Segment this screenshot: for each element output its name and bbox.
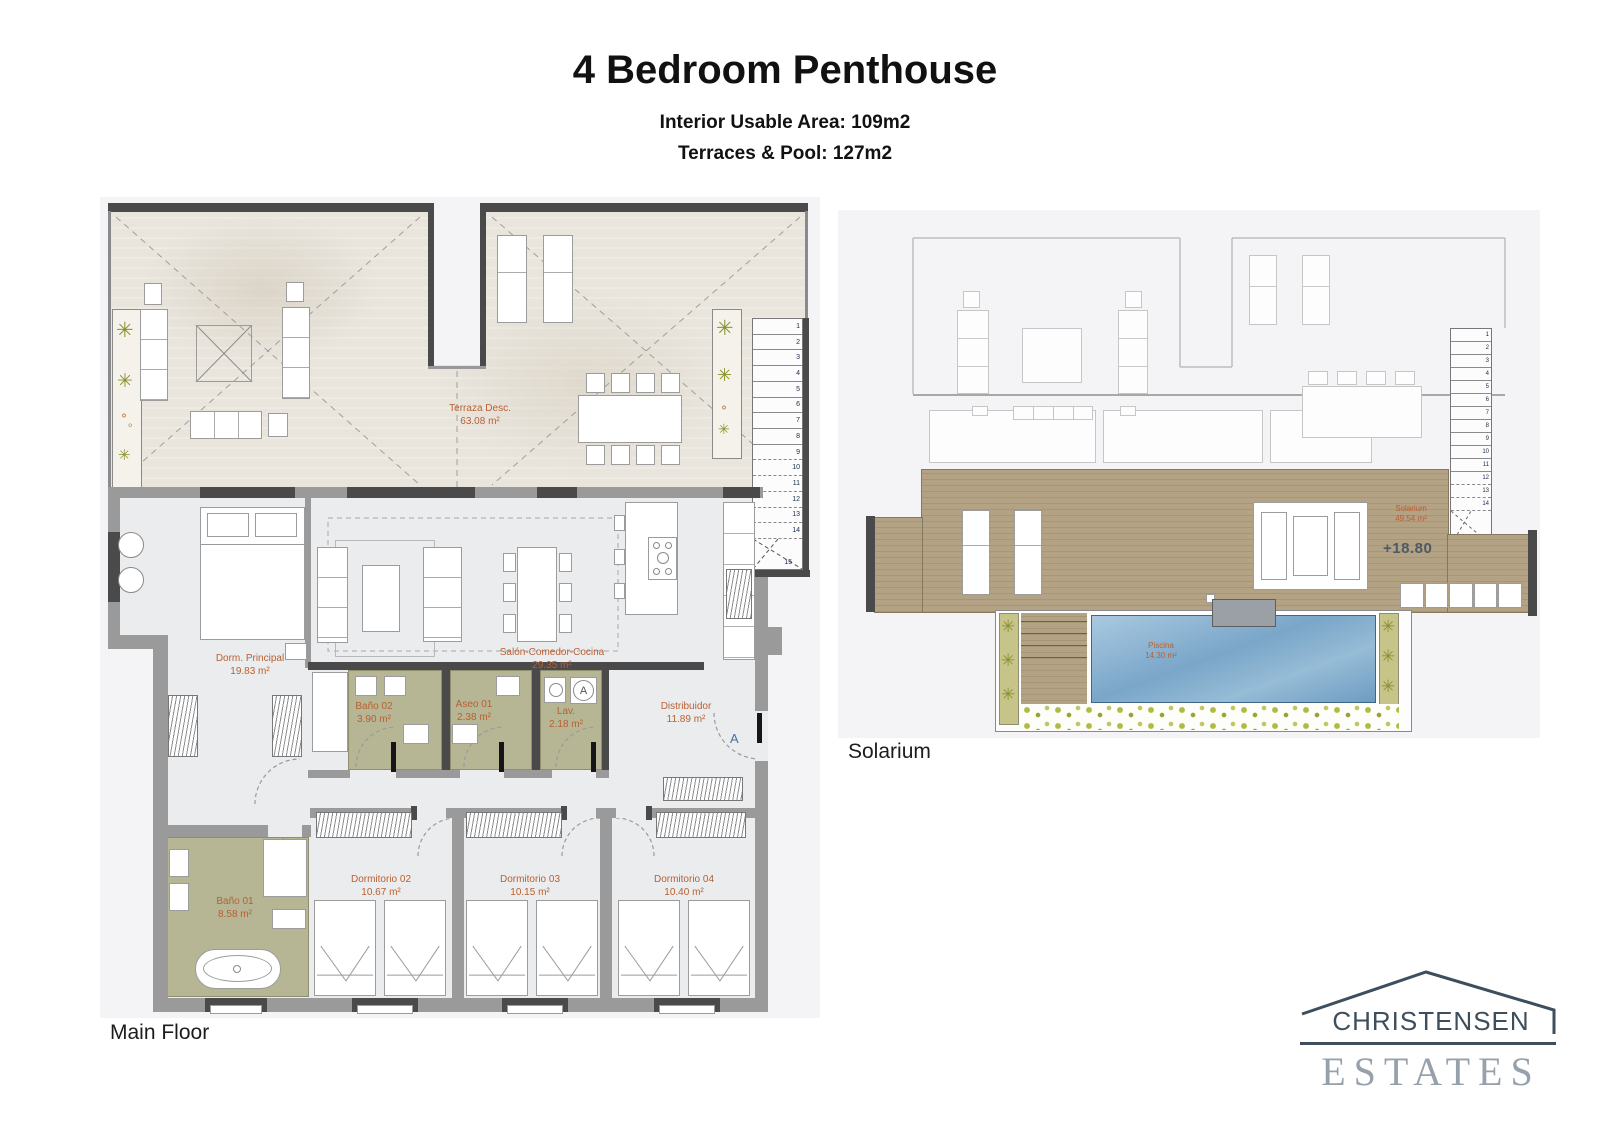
section-marker: A	[730, 731, 739, 746]
bathroom2-shower	[312, 672, 348, 752]
stair-step: 12	[1451, 472, 1491, 485]
wardrobe	[316, 812, 412, 838]
stair-step: 2	[753, 335, 802, 351]
dining-chair	[636, 373, 655, 393]
deck-seating-group	[1253, 502, 1368, 590]
dining-chair	[503, 553, 516, 572]
logo-rule	[1300, 1042, 1556, 1045]
solarium-deck	[922, 470, 1448, 612]
kitchen-hob	[648, 537, 677, 580]
step-line	[1021, 633, 1087, 634]
salon-coffee-table	[362, 565, 400, 632]
bathroom2-sink	[384, 676, 406, 696]
room-label-bano01: Baño 018.58 m²	[216, 895, 253, 921]
ghost-sofa	[957, 310, 989, 394]
seat-table	[1293, 516, 1328, 576]
terrace-wall-top-left	[108, 203, 428, 212]
terrace-wall-left	[108, 211, 111, 489]
wall-right-jog	[766, 627, 782, 655]
toilet	[403, 724, 429, 744]
ghost-sill	[972, 406, 988, 416]
subtitle-terraces-pool: Terraces & Pool: 127m2	[0, 143, 1570, 165]
page-title: 4 Bedroom Penthouse	[0, 48, 1570, 93]
pillow	[207, 513, 249, 537]
bathroom-strip-wall-bottom	[396, 770, 460, 778]
stair-step: 3	[1451, 355, 1491, 368]
exterior-patch	[108, 649, 153, 1018]
burner-icon	[665, 542, 672, 549]
logo-name: CHRISTENSEN	[1296, 1006, 1566, 1037]
wardrobe	[272, 695, 302, 757]
stair-step: 5	[1451, 381, 1491, 394]
single-bed	[466, 900, 528, 996]
door-leaf	[391, 742, 396, 772]
bathroom1-door-gap	[268, 825, 302, 837]
pool-platform	[1212, 599, 1276, 627]
door-post	[646, 806, 652, 820]
ghost-room	[1103, 410, 1263, 463]
main-floor-plan: ✳ ✳ ⚬ ⚬ ✳ ✳ ✳ ⚬ ✳ 1	[100, 197, 820, 1018]
stair-step: 14	[1451, 498, 1491, 511]
sun-lounger	[962, 510, 990, 595]
stair-step: 1	[1451, 329, 1491, 342]
stair-step: 7	[753, 413, 802, 429]
hall-wardrobe	[663, 777, 743, 801]
wc1-sink	[496, 676, 520, 696]
room-label-piscina: Piscina14.30 m²	[1145, 641, 1177, 662]
pool-terrace: ✳ ✳ ✳ ✳ ✳ ✳ Piscina14.30 m²	[995, 610, 1412, 732]
ghost-dining-table	[1302, 386, 1422, 438]
bathroom2-sink	[355, 676, 377, 696]
sun-lounger	[497, 235, 527, 323]
deck-storage-row	[1400, 583, 1522, 608]
wall-laundry-hall	[602, 670, 609, 770]
deck-wall-right	[1528, 530, 1537, 616]
terrace-sofa	[190, 411, 262, 439]
bathroom-strip-wall-bottom	[596, 770, 609, 778]
kitchen-cabinet	[614, 583, 625, 599]
plant-icon: ✳	[1381, 678, 1395, 695]
kitchen-cabinet	[614, 549, 625, 565]
plant-icon: ✳	[1001, 686, 1015, 703]
solarium-caption: Solarium	[848, 740, 931, 764]
sun-lounger	[543, 235, 573, 323]
wall-dorm02-dorm03	[452, 818, 464, 1000]
stair-step: 13	[753, 508, 802, 524]
stair-step: 6	[1451, 394, 1491, 407]
main-floor-caption: Main Floor	[110, 1021, 209, 1045]
stair-step: 4	[1451, 368, 1491, 381]
stair-step: 5	[753, 382, 802, 398]
flower-icon: ⚬	[126, 422, 134, 432]
seat	[1334, 512, 1360, 580]
window-segment	[347, 487, 475, 498]
dining-chair	[661, 445, 680, 465]
plant-icon: ✳	[1001, 618, 1015, 635]
seat	[1261, 512, 1287, 580]
plant-icon: ✳	[1381, 648, 1395, 665]
terrace-cushion	[268, 413, 288, 437]
terrace-planter-left: ✳ ✳ ⚬ ⚬ ✳	[112, 309, 142, 489]
wardrobe	[168, 695, 198, 757]
dining-chair	[611, 373, 630, 393]
plant-icon: ✳	[718, 422, 730, 436]
stairs-main: 1 2 3 4 5 6 7 8 9 10 11 12 13 14 15	[752, 318, 803, 570]
salon-sofa	[423, 547, 462, 642]
dining-chair	[559, 614, 572, 633]
dining-chair	[559, 583, 572, 602]
wall-bath2-wc	[442, 670, 450, 770]
terrace-cushion	[144, 283, 162, 305]
bathroom-strip-wall-bottom	[504, 770, 552, 778]
burner-icon	[653, 568, 660, 575]
ghost-sofa	[1118, 310, 1148, 394]
stair-step: 11	[1451, 459, 1491, 472]
ghost-chair	[1308, 371, 1328, 385]
bathroom1-sink	[169, 849, 189, 877]
terrace-notch-void	[434, 203, 480, 365]
washing-machine: A	[570, 677, 597, 704]
ghost-sill	[1120, 406, 1136, 416]
room-label-dorm-principal: Dorm. Principal19.83 m²	[216, 652, 284, 678]
door-leaf	[591, 742, 596, 772]
terrace-sofa	[140, 309, 168, 401]
stair-step: 13	[1451, 485, 1491, 498]
stair-step: 7	[1451, 407, 1491, 420]
plant-icon: ✳	[717, 366, 732, 384]
armchair-round	[118, 567, 144, 593]
room-label-aseo01: Aseo 012.38 m²	[456, 698, 493, 724]
window-sill	[507, 1005, 563, 1014]
room-label-salon: Salón-Comedor-Cocina29.35 m²	[500, 646, 605, 672]
logo-type: ESTATES	[1296, 1048, 1566, 1095]
bathtub-drain	[233, 965, 241, 973]
burner-icon	[665, 568, 672, 575]
nightstand	[285, 643, 307, 660]
window-segment	[537, 487, 577, 498]
terrace-cushion	[286, 282, 304, 302]
stair-step: 2	[1451, 342, 1491, 355]
terrace-notch-sill	[428, 366, 486, 369]
subtitle-interior-area: Interior Usable Area: 109m2	[0, 112, 1570, 134]
dining-chair	[503, 614, 516, 633]
stair-step: 10	[1451, 446, 1491, 459]
armchair-round	[118, 532, 144, 558]
plant-icon: ✳	[1001, 652, 1015, 669]
wall-wc-laundry	[532, 670, 540, 770]
window-segment	[723, 487, 760, 498]
pool-planter-right: ✳ ✳ ✳	[1379, 613, 1399, 705]
laundry-sink	[544, 677, 566, 703]
door-gap	[616, 808, 646, 818]
wall-dorm03-dorm04	[600, 818, 612, 1000]
terrace-planter-right: ✳ ✳ ⚬ ✳	[712, 309, 742, 459]
wardrobe	[466, 812, 562, 838]
ghost-cushion	[963, 291, 980, 308]
single-bed	[688, 900, 750, 996]
storage-cell	[1474, 583, 1498, 608]
room-label-terraza: Terraza Desc.63.08 m²	[449, 402, 511, 428]
flower-icon: ⚬	[719, 402, 729, 414]
dining-chair	[586, 445, 605, 465]
stairs-solarium: 1 2 3 4 5 6 7 8 9 10 11 12 13 14 15	[1450, 328, 1492, 546]
window-segment	[200, 487, 295, 498]
door-gap	[566, 808, 596, 818]
pool-planter-left: ✳ ✳ ✳	[999, 613, 1019, 725]
stairwell-wall-right	[803, 318, 809, 577]
dining-chair	[559, 553, 572, 572]
room-label-bano02: Baño 023.90 m²	[355, 700, 392, 726]
stair-step: 3	[753, 350, 802, 366]
stair-step: 1	[753, 319, 802, 335]
room-label-solarium: Solarium49.54 m²	[1395, 504, 1427, 525]
dining-chair	[636, 445, 655, 465]
bathtub	[195, 949, 281, 989]
entry-door-leaf	[757, 713, 762, 743]
pool-water	[1091, 615, 1376, 703]
ghost-chair	[1395, 371, 1415, 385]
ghost-lounger	[1249, 255, 1277, 325]
sink-basin	[549, 683, 563, 697]
door-leaf	[499, 742, 504, 772]
logo: CHRISTENSEN ESTATES	[1296, 960, 1566, 1100]
door-gap	[416, 808, 446, 818]
double-bed	[200, 507, 305, 640]
washer-drum: A	[573, 680, 594, 701]
plant-icon: ✳	[118, 448, 131, 463]
storage-cell	[1425, 583, 1449, 608]
step-line	[1021, 657, 1087, 658]
window-sill	[357, 1005, 413, 1014]
ghost-cushion	[1125, 291, 1142, 308]
burner-icon	[653, 542, 660, 549]
plant-icon: ✳	[716, 318, 734, 339]
bathroom1-shelf	[272, 909, 306, 929]
plant-icon: ✳	[1381, 618, 1395, 635]
single-bed	[384, 900, 446, 996]
stair-step: 4	[753, 366, 802, 382]
salon-sofa	[317, 547, 348, 643]
solarium-plan: 1 2 3 4 5 6 7 8 9 10 11 12 13 14 15 16	[838, 210, 1540, 738]
toilet	[452, 724, 478, 744]
terrace-notch-wall-left	[428, 203, 434, 369]
pool-plant-bed	[1021, 704, 1399, 730]
bathroom1-sink	[169, 883, 189, 911]
room-label-dorm04: Dormitorio 0410.40 m²	[654, 873, 714, 899]
room-label-dorm02: Dormitorio 0210.67 m²	[351, 873, 411, 899]
stair-step: 14	[753, 523, 802, 539]
step-line	[1021, 645, 1087, 646]
shower-tray	[263, 839, 307, 897]
single-bed	[618, 900, 680, 996]
step-line	[1021, 621, 1087, 622]
window-sill	[210, 1005, 262, 1014]
stair-step: 9	[1451, 433, 1491, 446]
solarium-deck-left	[875, 518, 922, 612]
salon-dining-table	[517, 547, 557, 642]
storage-cell	[1400, 583, 1424, 608]
stair-step: 10	[753, 460, 802, 476]
stairwell-wall-bottom	[750, 570, 810, 577]
stair-step: 8	[753, 429, 802, 445]
stair-turn: 15	[753, 539, 802, 569]
sun-lounger	[1014, 510, 1042, 595]
room-label-dorm03: Dormitorio 0310.15 m²	[500, 873, 560, 899]
stair-step: 6	[753, 398, 802, 414]
storage-cell	[1498, 583, 1522, 608]
plant-icon: ✳	[116, 320, 134, 341]
burner-icon	[657, 552, 669, 564]
kitchen-cabinet	[614, 515, 625, 531]
level-marker: +18.80	[1383, 540, 1432, 557]
ghost-lounger	[1302, 255, 1330, 325]
ghost-counter	[1013, 406, 1093, 420]
stair-step: 8	[1451, 420, 1491, 433]
ghost-chair	[1337, 371, 1357, 385]
plant-icon: ✳	[117, 372, 133, 391]
room-label-lav: Lav.2.18 m²	[549, 705, 583, 731]
ghost-chair	[1366, 371, 1386, 385]
oven-unit	[726, 569, 752, 619]
terrace-sofa	[282, 307, 310, 399]
dining-chair	[661, 373, 680, 393]
room-label-distribuidor: Distribuidor11.89 m²	[661, 700, 712, 726]
deck-wall-left	[866, 516, 875, 612]
terrace-notch-wall-right	[480, 203, 486, 369]
single-bed	[314, 900, 376, 996]
dining-chair	[503, 583, 516, 602]
terrace-dining-table	[578, 395, 682, 443]
wall-left-jog	[108, 635, 168, 649]
terrace-coffee-table	[196, 325, 252, 382]
ghost-table	[1022, 328, 1082, 383]
bathroom-strip-wall-bottom	[308, 770, 350, 778]
terrace-wall-top-right	[484, 203, 808, 212]
single-bed	[536, 900, 598, 996]
storage-cell	[1449, 583, 1473, 608]
window-sill	[659, 1005, 715, 1014]
dining-chair	[586, 373, 605, 393]
dining-chair	[611, 445, 630, 465]
stair-step: 9	[753, 445, 802, 461]
floorplan-page: 4 Bedroom Penthouse Interior Usable Area…	[0, 0, 1600, 1131]
pillow	[255, 513, 297, 537]
wardrobe	[656, 812, 746, 838]
